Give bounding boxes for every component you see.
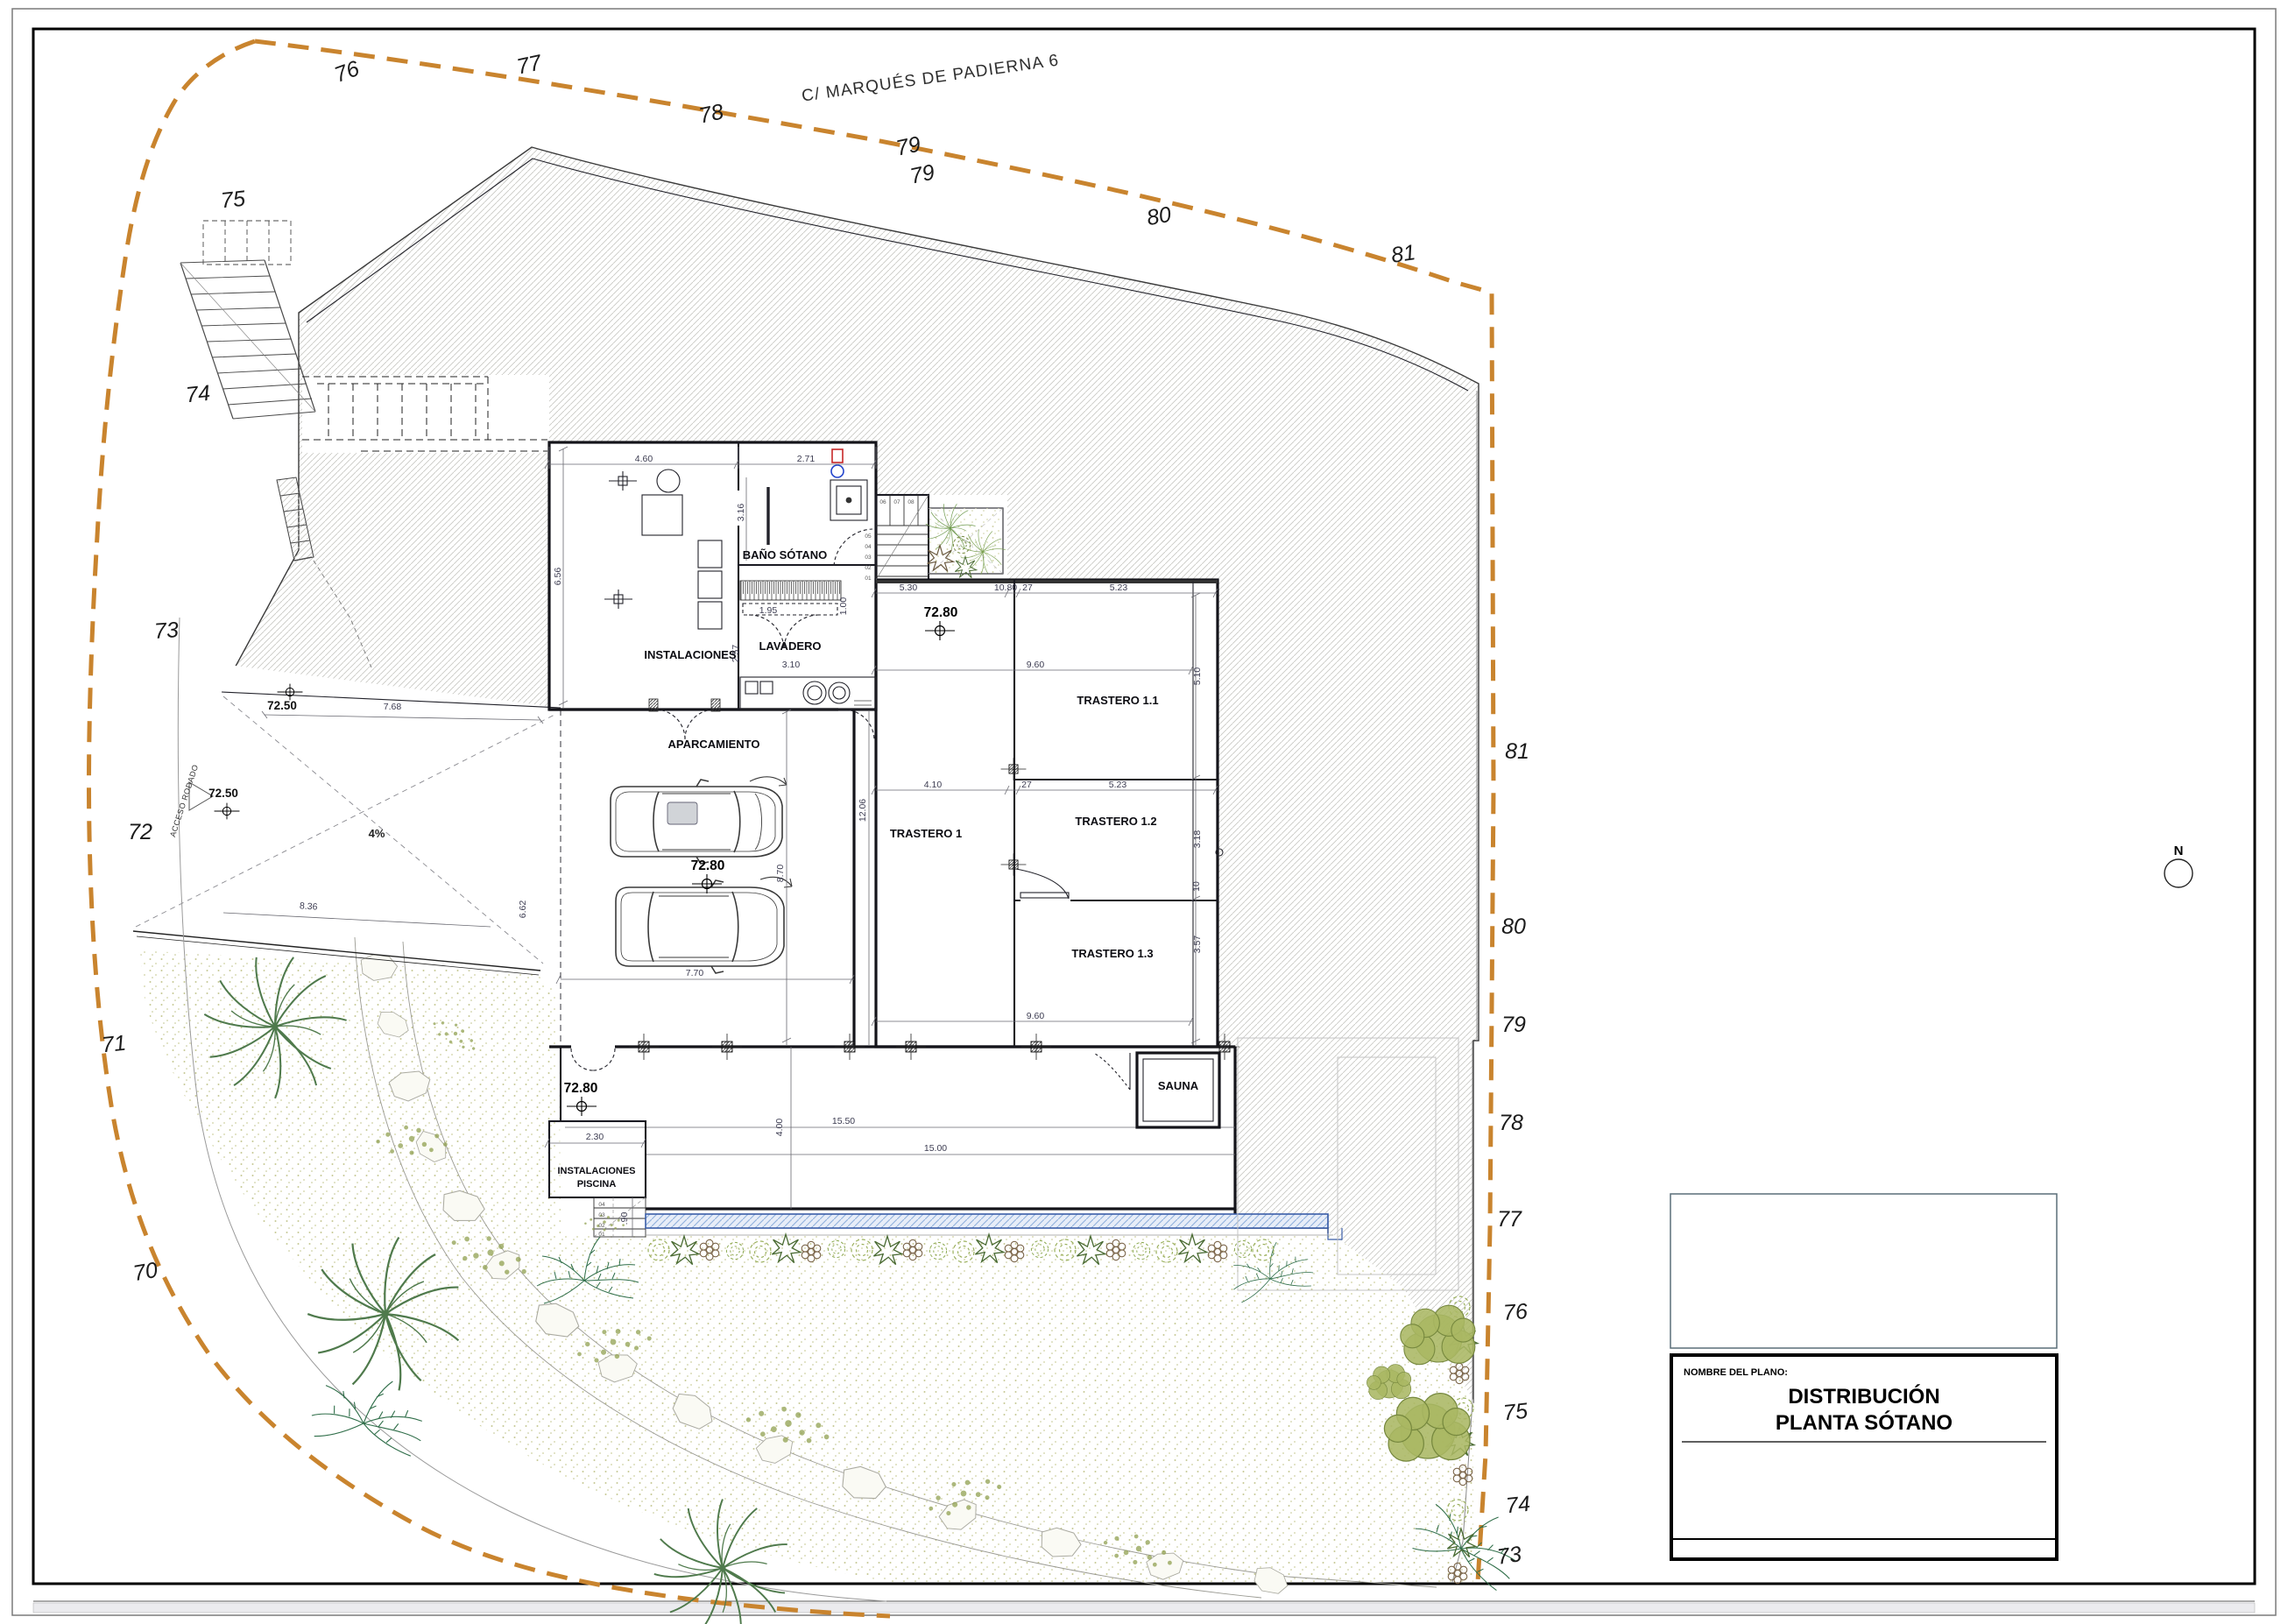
contour-label: 74 — [185, 381, 212, 408]
dim-label: 15.00 — [924, 1143, 947, 1154]
dim-label: 1.95 — [759, 605, 778, 616]
dim-label: 7.68 — [384, 702, 402, 712]
contour-label: 80 — [1145, 202, 1173, 230]
plan-title-line2: PLANTA SÓTANO — [1776, 1410, 1953, 1435]
room-label-inst-piscina: PISCINA — [577, 1179, 617, 1190]
contour-label: 74 — [1505, 1492, 1532, 1519]
dim-label: 1.00 — [838, 597, 849, 616]
dim-label: 8.70 — [775, 865, 786, 883]
contour-label: 73 — [153, 618, 180, 644]
stair-number: 01 — [865, 575, 872, 582]
dim-label: 7.70 — [686, 968, 704, 978]
room-label-instalaciones: INSTALACIONES — [644, 648, 737, 661]
dim-label: 2.57 — [731, 645, 741, 663]
bottom-strip — [33, 1603, 2255, 1613]
slope-label: 4% — [369, 827, 385, 840]
contour-label: 78 — [1499, 1111, 1523, 1135]
room-label-lavadero: LAVADERO — [759, 639, 821, 653]
contour-label: 81 — [1389, 240, 1416, 268]
dim-label: 12.06 — [858, 799, 868, 822]
level-label: 72.80 — [691, 858, 725, 873]
contour-label: 77 — [1497, 1207, 1522, 1232]
contour-label: 79 — [907, 159, 936, 188]
floor-plan-canvas: 76 77 78 79 79 80 81 75 74 73 72 71 70 8… — [0, 0, 2288, 1624]
contour-label: 71 — [101, 1031, 128, 1058]
dim-label: 4.00 — [774, 1119, 785, 1137]
room-label-trastero1: TRASTERO 1 — [890, 827, 962, 840]
stair-number: 02 — [598, 1223, 605, 1229]
stair-number: 07 — [893, 499, 900, 505]
plan-sheet: 76 77 78 79 79 80 81 75 74 73 72 71 70 8… — [0, 0, 2288, 1624]
dim-label: 10.80 — [994, 583, 1017, 593]
dim-label: 15.50 — [832, 1116, 855, 1126]
dim-label: 2.71 — [797, 454, 816, 464]
dim-label: 3.18 — [1192, 830, 1203, 849]
dim-label: 6.56 — [553, 568, 563, 586]
level-label: 72.80 — [924, 605, 958, 620]
room-label-inst-piscina: INSTALACIONES — [557, 1166, 635, 1176]
dim-label: 4.60 — [635, 454, 653, 464]
dim-label: 3.10 — [782, 660, 801, 670]
stair-number: 04 — [598, 1202, 605, 1208]
dim-label: 10 — [1191, 881, 1202, 892]
dim-label: 9.60 — [1027, 660, 1045, 670]
dim-label: 6.62 — [518, 900, 528, 919]
contour-label: 75 — [1502, 1399, 1529, 1426]
room-label-trastero13: TRASTERO 1.3 — [1071, 947, 1153, 960]
room-label-trastero11: TRASTERO 1.1 — [1077, 694, 1158, 707]
level-label: 72.50 — [267, 699, 297, 712]
contour-label: 81 — [1505, 739, 1529, 764]
stair-number: 08 — [907, 499, 914, 505]
stair-number: 03 — [598, 1212, 605, 1218]
contour-label: 75 — [220, 187, 247, 214]
contour-label: 72 — [128, 820, 152, 844]
dim-label: 8.36 — [300, 900, 318, 912]
stair-number: 05 — [865, 533, 872, 540]
dim-label: 5.10 — [1192, 667, 1203, 686]
dim-label: 2.30 — [586, 1132, 604, 1142]
north-label: N — [2174, 844, 2184, 858]
contour-label: 78 — [696, 99, 725, 128]
dim-label: 9.60 — [1027, 1011, 1045, 1021]
dim-label: 5.30 — [900, 583, 918, 593]
stair-number: 03 — [865, 554, 872, 561]
level-label: 72.50 — [208, 787, 238, 800]
contour-label: 70 — [131, 1258, 159, 1286]
car-sedan — [611, 777, 787, 864]
dim-label: 4.10 — [924, 780, 943, 790]
car-suv — [616, 877, 792, 973]
plan-title-line1: DISTRIBUCIÓN — [1788, 1384, 1939, 1409]
stair-number: 06 — [879, 499, 886, 505]
stair-number: 04 — [865, 544, 872, 550]
contour-label: 73 — [1495, 1542, 1523, 1570]
title-block: NOMBRE DEL PLANO: DISTRIBUCIÓN PLANTA SÓ… — [1670, 1194, 2057, 1559]
stair-number: 01 — [598, 1232, 605, 1238]
level-label: 72.80 — [564, 1081, 598, 1096]
dim-label: 5.23 — [1110, 583, 1128, 593]
room-label-sauna: SAUNA — [1158, 1079, 1199, 1092]
contour-label: 79 — [893, 131, 922, 160]
contour-label: 76 — [1502, 1299, 1529, 1325]
contour-label: 80 — [1501, 914, 1526, 939]
dim-label: .90 — [619, 1212, 630, 1225]
title-block-upper-box — [1670, 1194, 2057, 1348]
dim-label: 27 — [1022, 583, 1033, 593]
title-field-label: NOMBRE DEL PLANO: — [1684, 1367, 1788, 1378]
dim-label: 5.23 — [1109, 780, 1127, 790]
dim-label: 27 — [1021, 780, 1032, 790]
room-label-trastero12: TRASTERO 1.2 — [1075, 815, 1156, 828]
room-label-bano: BAÑO SÓTANO — [743, 548, 828, 561]
stair-number: 02 — [865, 565, 872, 571]
dim-label: 3.57 — [1192, 936, 1203, 954]
contour-label: 79 — [1501, 1013, 1526, 1037]
room-label-aparcamiento: APARCAMIENTO — [668, 738, 760, 751]
dim-label: 3.16 — [736, 504, 746, 522]
